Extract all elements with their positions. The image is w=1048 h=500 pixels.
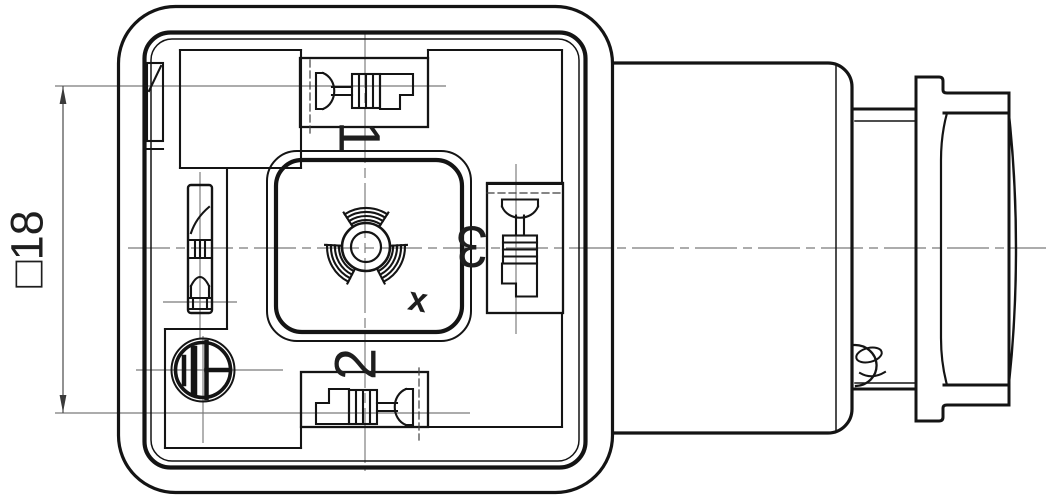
center-screw-hole-outer (342, 223, 390, 271)
drawing-svg: □18 1 2 3 x (0, 0, 1048, 500)
dimension (60, 86, 67, 413)
boss-outline-thin (267, 151, 471, 341)
dimension-label: □18 (2, 210, 53, 287)
center-screw-hole-inner (351, 232, 381, 262)
terminal-2-label: 2 (324, 348, 389, 380)
gland-nut-waist (941, 113, 947, 385)
central-screw-boss (267, 151, 471, 341)
centerlines (55, 33, 1046, 471)
cover-screw-side (854, 345, 885, 386)
technical-drawing-canvas: □18 1 2 3 x (0, 0, 1048, 500)
cable-gland-nut (916, 77, 1016, 421)
terminal-1-label: 1 (327, 121, 392, 153)
polarization-rib (147, 63, 163, 149)
terminal-1-recess (300, 58, 428, 127)
boss-outline-thick (276, 160, 462, 332)
terminal-3-label: 3 (456, 214, 488, 279)
center-marking-label: x (405, 280, 430, 321)
dimension-arrow-bottom (60, 395, 67, 413)
dimension-arrow-top (60, 87, 67, 105)
